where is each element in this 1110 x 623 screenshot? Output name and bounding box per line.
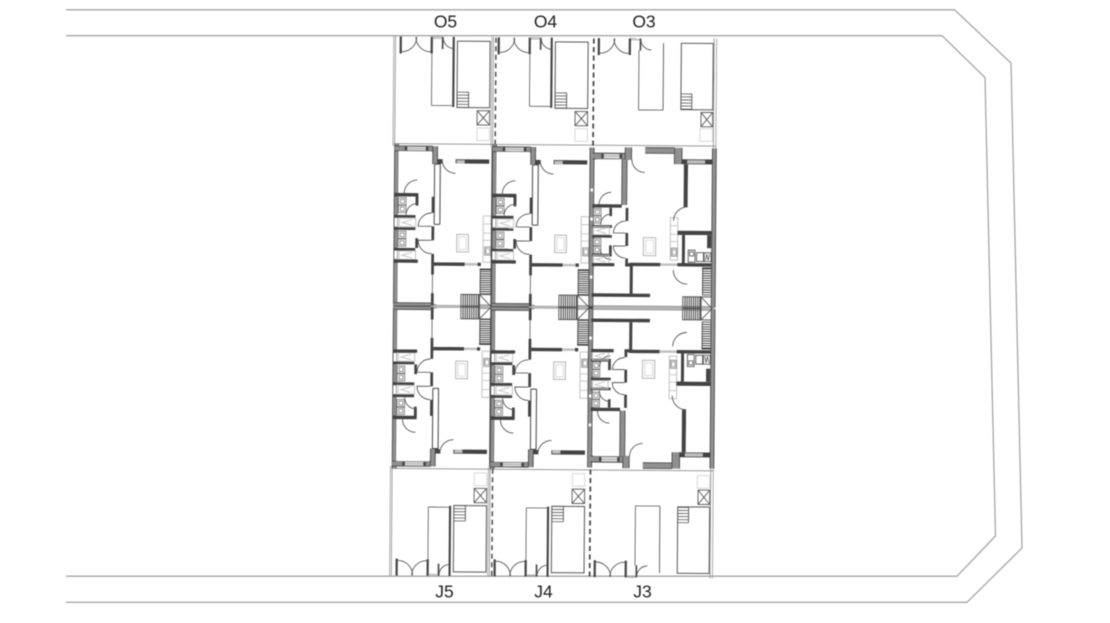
svg-text:J5: J5	[435, 582, 453, 602]
svg-text:J4: J4	[534, 582, 553, 602]
svg-text:J3: J3	[633, 582, 651, 602]
svg-text:O5: O5	[434, 12, 457, 32]
svg-text:O4: O4	[534, 12, 558, 32]
svg-text:O3: O3	[632, 12, 655, 32]
